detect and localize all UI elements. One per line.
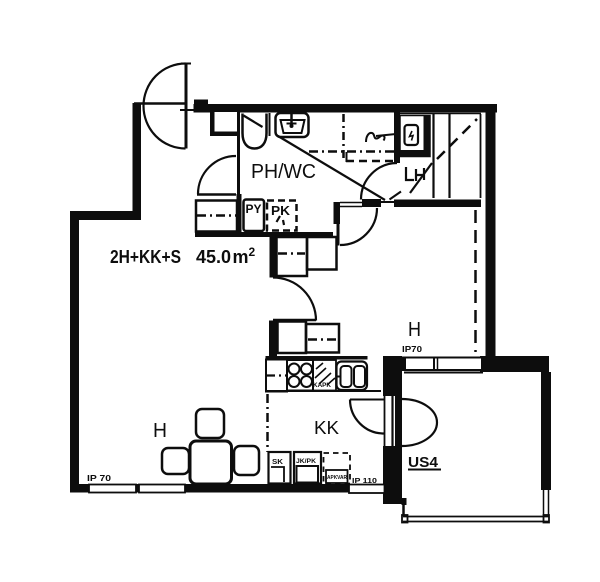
svg-text:US4: US4 — [408, 454, 439, 471]
svg-text:IP70: IP70 — [402, 344, 422, 354]
svg-text:2H+KK+S: 2H+KK+S — [110, 247, 181, 267]
svg-text:KAPK: KAPK — [313, 383, 332, 389]
svg-text:JK/PK: JK/PK — [296, 458, 316, 465]
svg-text:IP 70: IP 70 — [87, 473, 111, 483]
svg-text:APKVAR: APKVAR — [327, 475, 347, 481]
svg-text:H: H — [153, 420, 167, 442]
svg-text:45.0 m2: 45.0 m2 — [196, 245, 256, 267]
svg-text:PH/WC: PH/WC — [251, 161, 316, 183]
svg-text:PY: PY — [246, 202, 262, 216]
svg-text:KK: KK — [314, 418, 339, 438]
svg-text:H: H — [408, 319, 421, 341]
svg-text:SK: SK — [272, 459, 283, 466]
svg-text:PK: PK — [271, 203, 291, 218]
